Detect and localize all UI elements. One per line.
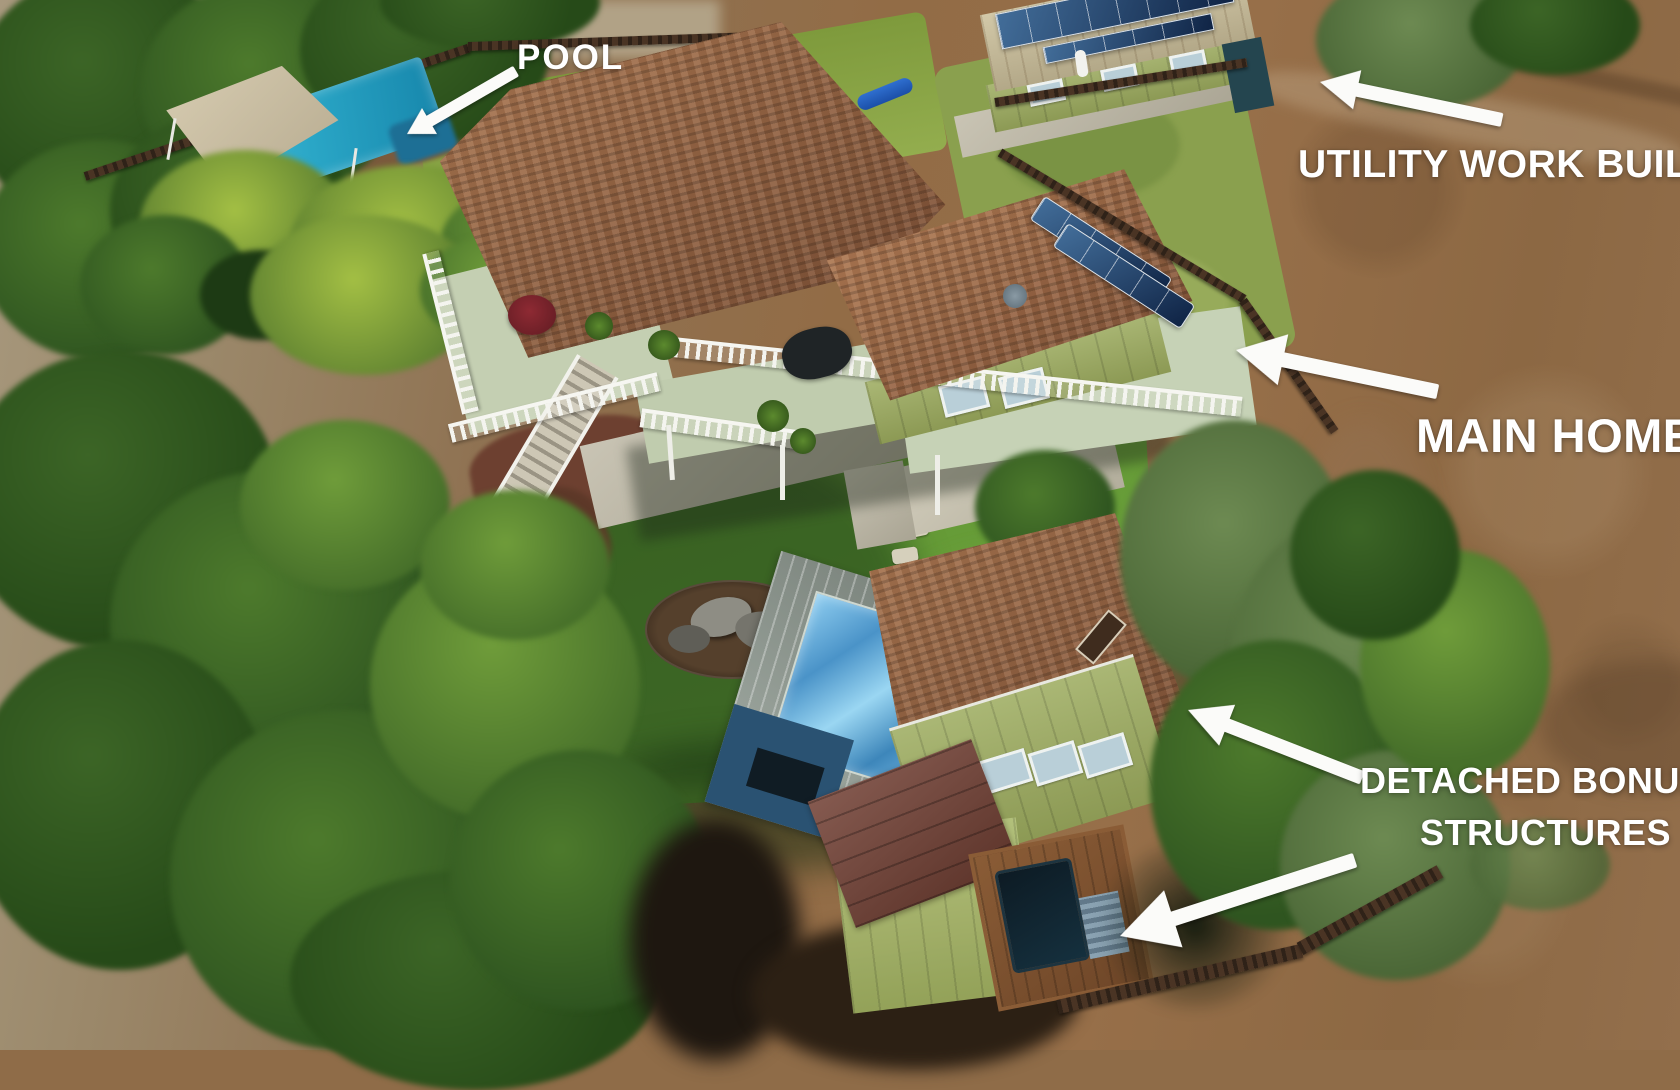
aerial-property-photo: { "annotations": { "pool": { "label": "P…	[0, 0, 1680, 1050]
tree-canopy	[1290, 470, 1460, 640]
deck-post	[780, 445, 785, 500]
bonus-window	[1027, 740, 1083, 787]
main-home-label: MAIN HOME	[1416, 408, 1680, 463]
detached-bonus-label-line1: DETACHED BONUS	[1360, 760, 1680, 802]
bonus-window	[1077, 732, 1133, 779]
hot-tub	[994, 857, 1090, 974]
potted-plant	[648, 330, 680, 360]
potted-plant	[757, 400, 789, 432]
patio-umbrella	[508, 295, 556, 335]
deck-post	[935, 455, 940, 515]
potted-plant	[790, 428, 816, 454]
pool-label: POOL	[517, 38, 624, 78]
tree-canopy	[240, 420, 450, 590]
potted-plant	[585, 312, 613, 340]
boulder	[668, 625, 710, 653]
roof-vent	[1003, 284, 1027, 308]
utility-building-label: UTILITY WORK BUILDING	[1298, 143, 1680, 187]
tree-canopy	[420, 490, 610, 640]
detached-bonus-label-line2: STRUCTURES	[1420, 812, 1671, 854]
